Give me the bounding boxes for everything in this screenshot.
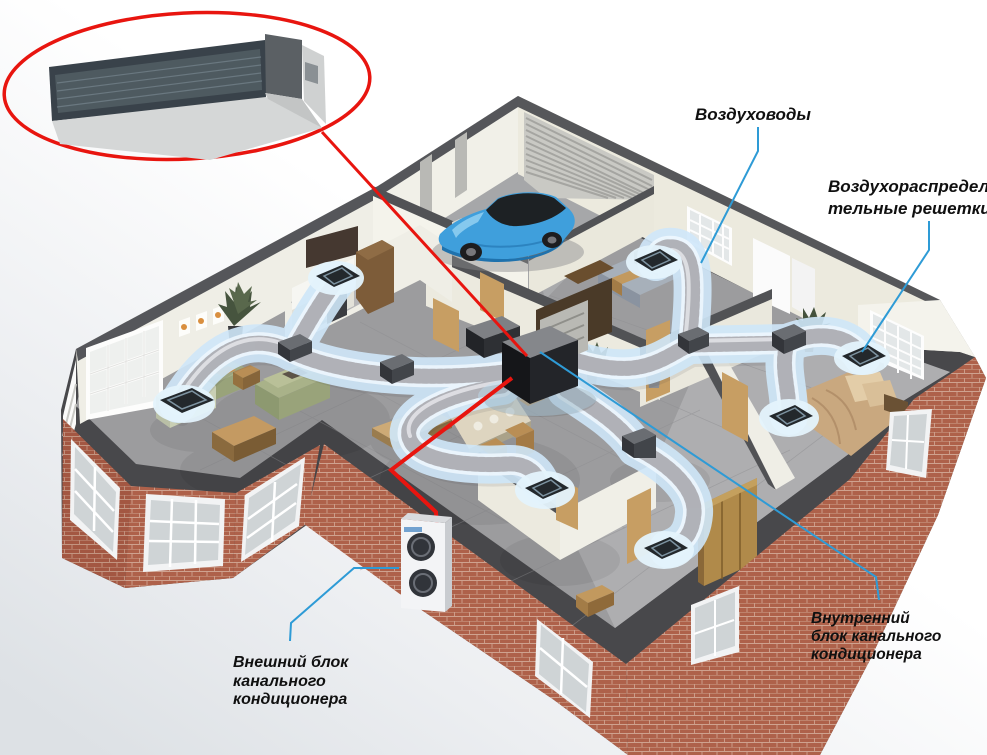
svg-text:кондиционера: кондиционера bbox=[811, 646, 922, 663]
svg-text:Внутренний: Внутренний bbox=[811, 610, 910, 627]
svg-text:Воздухораспредели: Воздухораспредели bbox=[828, 177, 987, 196]
svg-text:кондиционера: кондиционера bbox=[233, 691, 347, 708]
svg-text:тельные решетки: тельные решетки bbox=[828, 199, 987, 218]
svg-text:канального: канального bbox=[233, 673, 326, 690]
svg-text:Внешний блок: Внешний блок bbox=[233, 654, 349, 671]
svg-text:блок канального: блок канального bbox=[811, 628, 941, 645]
svg-text:Воздуховоды: Воздуховоды bbox=[695, 105, 811, 124]
